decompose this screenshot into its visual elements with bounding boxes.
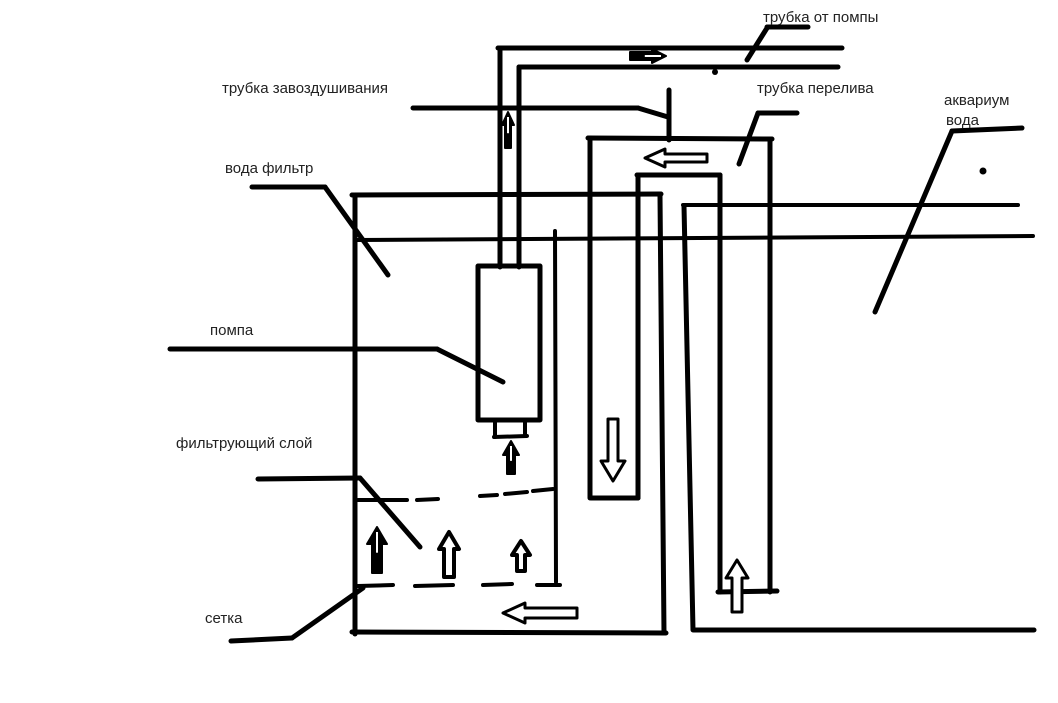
filter-bottom-edge <box>352 632 666 633</box>
leader-layer-d <box>360 478 420 547</box>
layer-dash-bottom-2 <box>415 585 453 586</box>
ink-dot-top-pipe <box>712 69 718 75</box>
filter-top-edge <box>352 194 661 195</box>
label-filter-layer: фильтрующий слой <box>176 436 312 451</box>
pump-body <box>478 266 540 420</box>
flow-down-overflow-left-leg <box>601 419 625 481</box>
label-pump: помпа <box>210 323 253 338</box>
flow-up-overflow-right-leg <box>726 560 748 612</box>
layer-dash-top-2 <box>417 499 438 500</box>
leader-air-vent-d <box>638 108 668 117</box>
flow-up-filter-layer-3 <box>512 541 530 571</box>
ink-dot-aquarium <box>980 168 987 175</box>
layer-dash-bottom-3 <box>483 584 512 585</box>
label-mesh: сетка <box>205 611 242 626</box>
leader-layer-h <box>258 478 360 479</box>
leader-pump-d <box>437 349 503 382</box>
filter-right-wall <box>660 196 664 633</box>
leader-from-pump-d <box>747 28 767 60</box>
pump-nozzle-bottom <box>494 436 527 437</box>
layer-dash-top-5 <box>533 489 553 491</box>
leader-mesh-h <box>231 638 292 641</box>
label-filter-water: вода фильтр <box>225 161 313 176</box>
label-aquarium-water: вода <box>946 113 979 128</box>
leader-aquarium-d <box>875 131 952 312</box>
overflow-right-leg-end <box>718 591 777 592</box>
layer-dash-bottom-1 <box>358 585 393 586</box>
overflow-outer-top <box>588 138 772 139</box>
label-tube-from-pump: трубка от помпы <box>763 10 878 25</box>
layer-dash-top-4 <box>505 492 527 494</box>
layer-dash-top-3 <box>480 495 497 496</box>
label-air-vent-tube: трубка завоздушивания <box>222 81 388 96</box>
flow-left-overflow-top <box>645 149 707 167</box>
pump-chamber-divider <box>555 231 556 582</box>
aquarium-left-wall <box>684 206 693 630</box>
label-aquarium: аквариум <box>944 93 1009 108</box>
flow-left-filter-bottom <box>503 603 577 623</box>
water-level-line <box>356 236 1033 240</box>
filter-scheme-drawing <box>0 0 1058 703</box>
flow-up-filter-layer-2 <box>439 532 459 577</box>
label-overflow-tube: трубка перелива <box>757 81 874 96</box>
filter-scheme-canvas: трубка от помпытрубка завоздушиваниятруб… <box>0 0 1058 703</box>
